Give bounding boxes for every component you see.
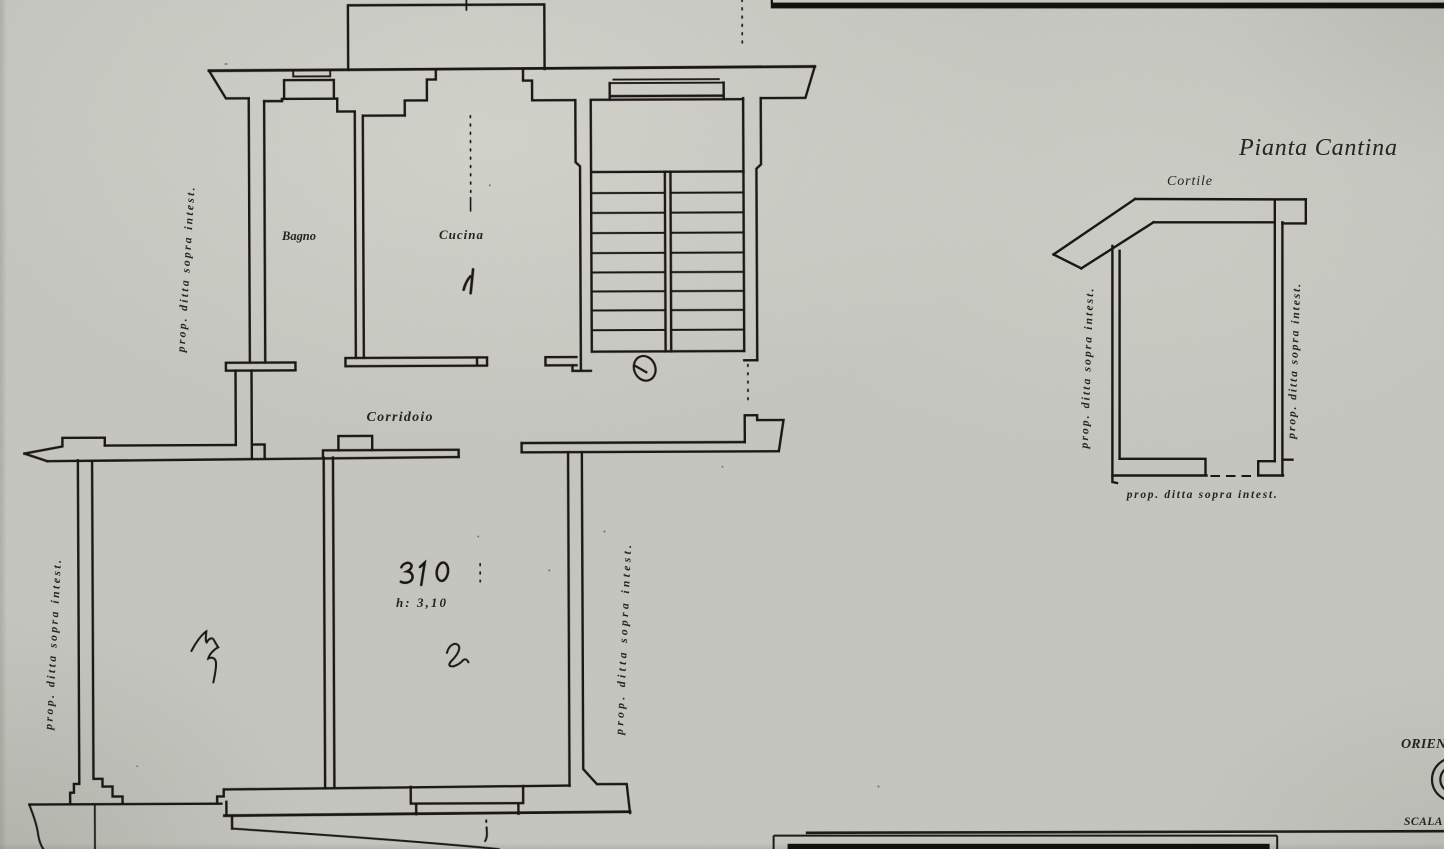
svg-text:prop. ditta sopra intest.: prop. ditta sopra intest. (1126, 489, 1277, 501)
svg-text:Cucina: Cucina (439, 227, 484, 242)
svg-text:Cortile: Cortile (1167, 174, 1212, 189)
svg-text:SCALA 1:: SCALA 1: (1404, 816, 1444, 828)
svg-text:ORIENTAM: ORIENTAM (1401, 737, 1444, 752)
svg-text:Pianta Cantina: Pianta Cantina (1238, 135, 1397, 161)
svg-text:Bagno: Bagno (281, 229, 316, 243)
svg-text:Corridoio: Corridoio (367, 410, 433, 425)
